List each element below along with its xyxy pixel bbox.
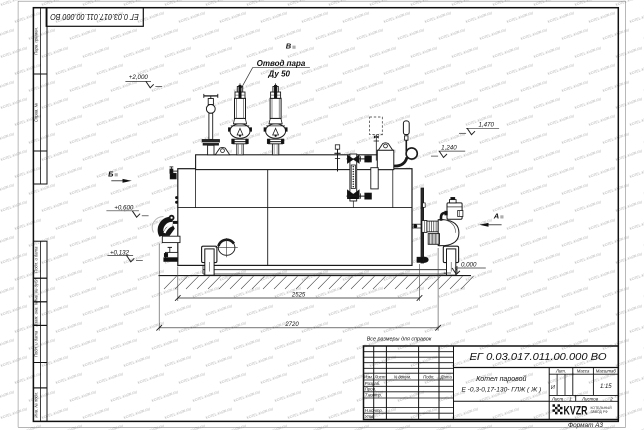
svg-text:Листов: Листов (581, 396, 599, 401)
svg-text:Т.контр.: Т.контр. (365, 393, 382, 398)
svg-text:Б: Б (108, 169, 114, 178)
svg-text:И: И (551, 385, 555, 391)
svg-text:Масса: Масса (577, 369, 590, 374)
svg-text:Формат А3: Формат А3 (568, 422, 603, 429)
svg-text:Подп. и дата: Подп. и дата (33, 246, 38, 273)
svg-text:N докум.: N докум. (394, 374, 411, 379)
svg-text:ЕГ 0.03.017.011.00.000 ВО: ЕГ 0.03.017.011.00.000 ВО (50, 12, 139, 21)
svg-text:Н.контр.: Н.контр. (365, 408, 383, 413)
svg-text:Дата: Дата (440, 374, 453, 379)
svg-text:Изм.: Изм. (364, 374, 373, 379)
svg-text:Инв. № подл.: Инв. № подл. (33, 392, 38, 418)
svg-text:1:15: 1:15 (600, 384, 612, 390)
svg-text:Справ. №: Справ. № (33, 103, 38, 122)
svg-text:Лист: Лист (551, 396, 564, 401)
svg-text:Отвод пара: Отвод пара (257, 59, 306, 68)
svg-text:Ду 50: Ду 50 (267, 69, 290, 78)
svg-text:Масштаб: Масштаб (596, 369, 617, 374)
svg-text:Инв. № дубл.: Инв. № дубл. (33, 277, 38, 303)
svg-text:2525: 2525 (291, 292, 306, 298)
svg-text:Разраб.: Разраб. (365, 381, 381, 386)
svg-text:Утв.: Утв. (365, 414, 375, 419)
svg-text:2720: 2720 (284, 322, 299, 328)
svg-text:ЕГ 0.03.017.011.00.000 ВО: ЕГ 0.03.017.011.00.000 ВО (470, 352, 607, 363)
svg-text:1,240: 1,240 (441, 144, 457, 151)
svg-text:В: В (286, 42, 292, 51)
svg-text:Подп. и дата: Подп. и дата (33, 330, 38, 357)
svg-text:А: А (493, 211, 499, 220)
svg-text:1,470: 1,470 (478, 121, 494, 128)
svg-text:0,000: 0,000 (461, 262, 477, 269)
svg-text:Перв. примен.: Перв. примен. (33, 27, 38, 55)
svg-text:2: 2 (609, 396, 613, 401)
svg-text:Лит.: Лит. (555, 369, 566, 374)
svg-text:Все размеры для справок: Все размеры для справок (367, 336, 432, 342)
svg-text:Лист: Лист (373, 374, 385, 379)
svg-text:Пров.: Пров. (365, 386, 376, 391)
svg-text:KVZR: KVZR (564, 406, 589, 418)
svg-text:+2,000: +2,000 (129, 74, 149, 81)
svg-text:Е -0,3-0,17-130- ГЛЖ ( Ж ): Е -0,3-0,17-130- ГЛЖ ( Ж ) (461, 387, 541, 394)
svg-text:Котел паровой: Котел паровой (476, 375, 526, 383)
svg-text:Подп.: Подп. (423, 374, 434, 379)
svg-text:ЗАВОД РФ: ЗАВОД РФ (591, 410, 608, 414)
svg-text:Взам. инв. №: Взам. инв. № (33, 300, 38, 326)
